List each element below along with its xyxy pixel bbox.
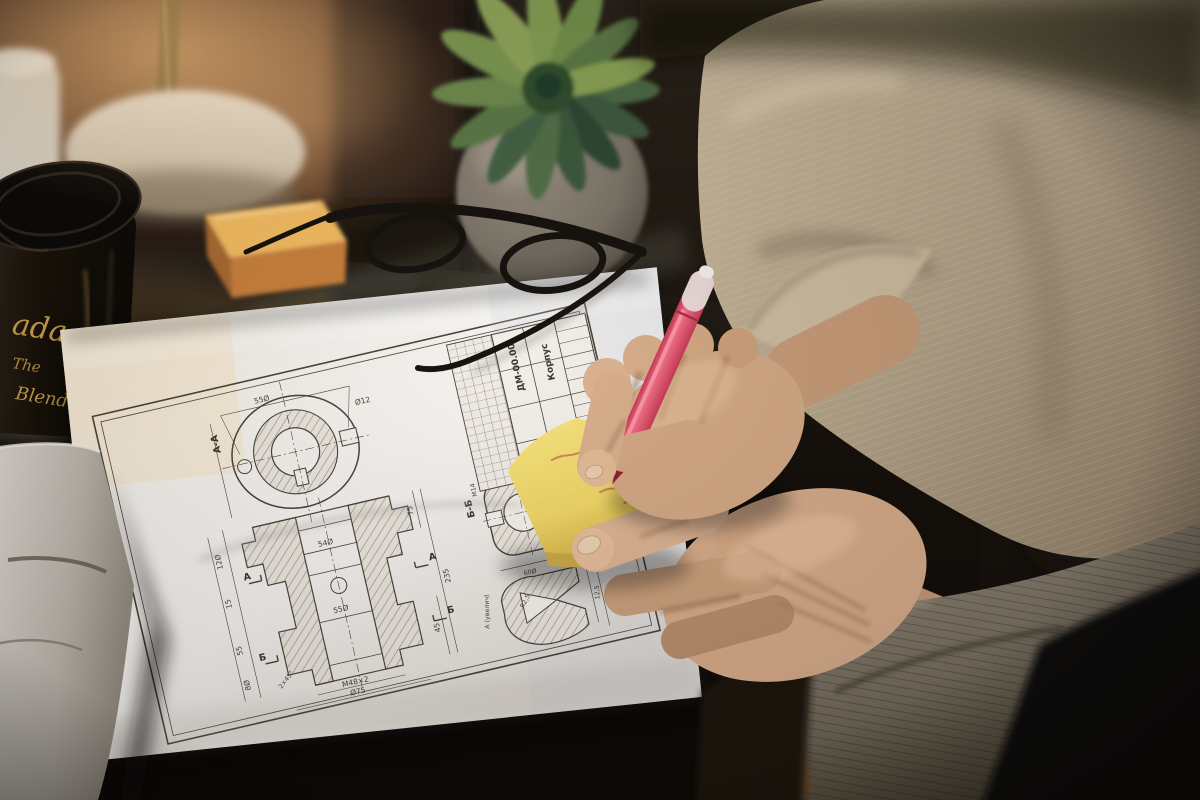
scene-canvas: ada The Blend	[0, 0, 1200, 800]
photo-scene: ada The Blend	[0, 0, 1200, 800]
